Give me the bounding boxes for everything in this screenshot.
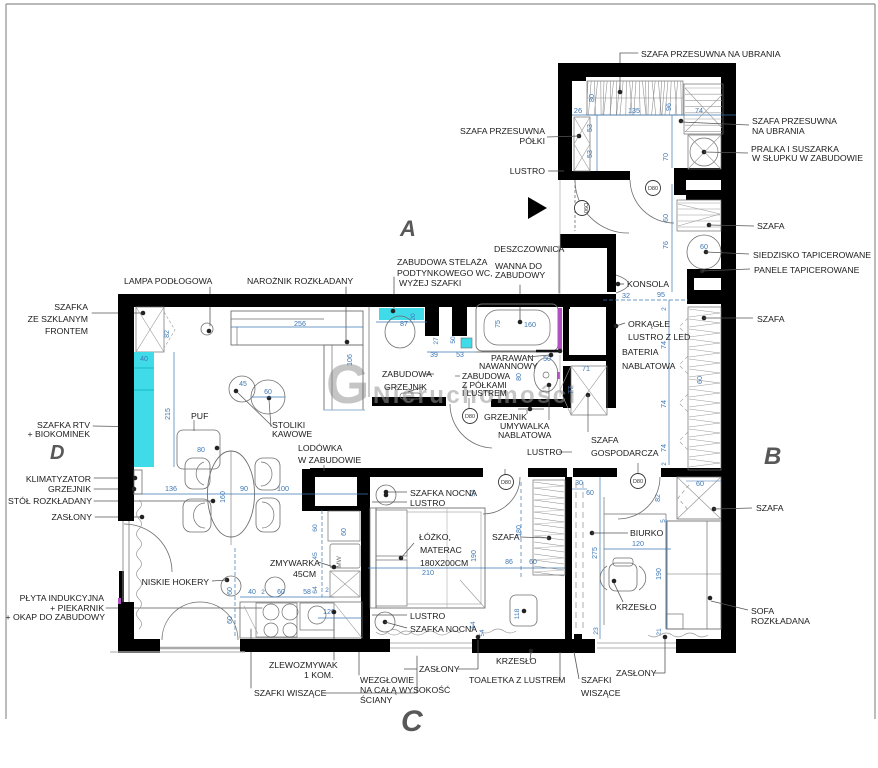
svg-text:SZAFKA: SZAFKA [54, 302, 88, 312]
svg-text:KAWOWE: KAWOWE [272, 429, 312, 439]
svg-text:118: 118 [514, 608, 521, 619]
svg-text:D90: D90 [582, 203, 588, 213]
svg-text:LUSTRO: LUSTRO [410, 498, 445, 508]
svg-text:82: 82 [164, 330, 171, 338]
svg-text:40: 40 [248, 589, 256, 596]
svg-text:2: 2 [261, 589, 265, 596]
svg-text:40: 40 [140, 356, 148, 363]
svg-text:PANELE TAPICEROWANE: PANELE TAPICEROWANE [754, 265, 860, 275]
svg-text:D80: D80 [648, 186, 658, 192]
svg-text:60: 60 [277, 589, 285, 596]
svg-text:ŁÓŻKO,: ŁÓŻKO, [419, 532, 451, 542]
svg-text:BIURKO: BIURKO [630, 528, 664, 538]
svg-text:SZAFA: SZAFA [757, 221, 785, 231]
svg-text:80: 80 [587, 94, 596, 102]
svg-text:50: 50 [450, 336, 457, 344]
svg-text:58: 58 [303, 589, 311, 596]
svg-text:20: 20 [410, 313, 417, 321]
svg-text:135: 135 [628, 106, 640, 115]
svg-text:NABLATOWA: NABLATOWA [622, 361, 676, 371]
svg-text:76: 76 [661, 241, 670, 249]
svg-text:LAMPA PODŁOGOWA: LAMPA PODŁOGOWA [124, 276, 213, 286]
svg-text:74: 74 [695, 106, 703, 115]
svg-text:D80: D80 [465, 414, 475, 420]
svg-text:74: 74 [659, 341, 668, 349]
svg-text:GRZEJNIK: GRZEJNIK [384, 382, 427, 392]
svg-text:A: A [399, 216, 416, 241]
svg-text:2: 2 [325, 587, 329, 594]
svg-text:GRZEJNIK: GRZEJNIK [48, 484, 91, 494]
svg-text:PODTYNKOWEGO WC,: PODTYNKOWEGO WC, [397, 268, 493, 278]
svg-text:60: 60 [227, 587, 234, 595]
svg-text:30: 30 [575, 480, 583, 487]
svg-text:27: 27 [433, 337, 440, 345]
svg-text:FRONTEM: FRONTEM [45, 326, 88, 336]
svg-text:96: 96 [664, 103, 673, 111]
svg-text:26: 26 [574, 106, 582, 115]
svg-text:ZLEWOZMYWAK: ZLEWOZMYWAK [269, 660, 338, 670]
svg-text:190: 190 [656, 568, 663, 580]
svg-text:SZAFA: SZAFA [756, 503, 784, 513]
svg-text:2: 2 [661, 307, 668, 311]
svg-text:NA CAŁĄ WYSOKOŚĆ: NA CAŁĄ WYSOKOŚĆ [360, 684, 450, 695]
svg-text:WISZĄCE: WISZĄCE [581, 688, 621, 698]
svg-text:PŁYTA INDUKCYJNA: PŁYTA INDUKCYJNA [20, 593, 105, 603]
svg-text:64: 64 [312, 586, 319, 594]
svg-text:LUSTRO Z LED: LUSTRO Z LED [628, 332, 690, 342]
svg-text:86: 86 [505, 559, 513, 566]
svg-text:53: 53 [585, 124, 594, 132]
svg-text:SZAFA PRZESUWNA: SZAFA PRZESUWNA [460, 126, 545, 136]
svg-text:32: 32 [622, 291, 630, 300]
svg-text:ŚCIANY: ŚCIANY [360, 694, 393, 705]
svg-text:D: D [50, 442, 64, 464]
svg-text:C: C [401, 705, 424, 738]
svg-text:WYŻEJ SZAFKI: WYŻEJ SZAFKI [399, 278, 461, 288]
svg-text:SZAFA: SZAFA [492, 532, 520, 542]
svg-text:PUF: PUF [191, 411, 208, 421]
svg-text:82: 82 [655, 494, 662, 502]
svg-text:WEZGŁOWIE: WEZGŁOWIE [360, 675, 414, 685]
svg-text:80: 80 [197, 447, 205, 454]
svg-text:ROZKŁADANA: ROZKŁADANA [751, 616, 810, 626]
svg-text:B: B [764, 443, 781, 470]
svg-text:NAROŻNIK ROZKŁADANY: NAROŻNIK ROZKŁADANY [247, 276, 353, 286]
svg-text:LUSTRO: LUSTRO [527, 447, 562, 457]
svg-text:SOFA: SOFA [751, 606, 774, 616]
svg-text:60: 60 [700, 242, 708, 251]
svg-text:PÓŁKI: PÓŁKI [519, 136, 545, 146]
svg-text:60: 60 [695, 376, 704, 384]
svg-text:SZAFKA NOCNA: SZAFKA NOCNA [410, 624, 477, 634]
svg-text:45: 45 [239, 381, 247, 388]
svg-text:W SŁUPKU W ZABUDOWIE: W SŁUPKU W ZABUDOWIE [752, 153, 863, 163]
svg-text:210: 210 [422, 568, 434, 577]
svg-text:1 KOM.: 1 KOM. [304, 670, 333, 680]
svg-text:74: 74 [659, 400, 668, 408]
svg-text:LUSTRO: LUSTRO [410, 611, 445, 621]
svg-text:MW: MW [336, 555, 343, 567]
svg-text:215: 215 [165, 408, 172, 420]
svg-text:53: 53 [456, 352, 464, 359]
svg-text:NABLATOWA: NABLATOWA [498, 430, 552, 440]
svg-text:80: 80 [516, 373, 523, 381]
svg-text:D80: D80 [633, 479, 643, 485]
svg-text:SZAFKA NOCNA: SZAFKA NOCNA [410, 488, 477, 498]
svg-text:39: 39 [430, 352, 438, 359]
svg-text:23: 23 [593, 627, 600, 635]
svg-text:SIEDZISKO TAPICEROWANE: SIEDZISKO TAPICEROWANE [753, 250, 871, 260]
svg-text:ZE SZKLANYM: ZE SZKLANYM [28, 314, 88, 324]
svg-text:70: 70 [661, 153, 670, 161]
svg-text:60: 60 [312, 524, 319, 532]
svg-text:190: 190 [471, 550, 478, 562]
svg-text:KRZESŁO: KRZESŁO [616, 602, 657, 612]
svg-text:75: 75 [495, 320, 502, 328]
svg-text:I LUSTREM: I LUSTREM [462, 388, 507, 398]
svg-text:SZAFA: SZAFA [757, 314, 785, 324]
svg-text:ZMYWARKA: ZMYWARKA [270, 558, 320, 568]
svg-text:100: 100 [277, 484, 289, 493]
svg-text:W ZABUDOWIE: W ZABUDOWIE [298, 455, 361, 465]
svg-text:NA UBRANIA: NA UBRANIA [752, 126, 805, 136]
svg-text:ZABUDOWY: ZABUDOWY [495, 270, 545, 280]
svg-text:60: 60 [264, 389, 272, 396]
svg-text:77: 77 [566, 386, 575, 394]
svg-text:60: 60 [227, 616, 234, 624]
svg-text:160: 160 [524, 320, 536, 329]
svg-text:MATERAC: MATERAC [420, 545, 462, 555]
svg-text:LODÓWKA: LODÓWKA [298, 443, 343, 453]
svg-text:95: 95 [657, 290, 665, 299]
svg-text:ZABUDOWA STELAŻA: ZABUDOWA STELAŻA [397, 257, 488, 267]
svg-text:DESZCZOWNICA: DESZCZOWNICA [494, 244, 565, 254]
svg-text:45CM: 45CM [293, 569, 316, 579]
svg-text:KLIMATYZATOR: KLIMATYZATOR [26, 474, 91, 484]
svg-text:SZAFKI WISZĄCE: SZAFKI WISZĄCE [254, 688, 327, 698]
svg-text:136: 136 [165, 484, 177, 493]
svg-text:KONSOLA: KONSOLA [627, 279, 669, 289]
svg-text:ZASŁONY: ZASŁONY [419, 664, 460, 674]
svg-text:120: 120 [632, 539, 644, 548]
svg-text:60: 60 [661, 214, 670, 222]
svg-text:SZAFA PRZESUWNA: SZAFA PRZESUWNA [752, 116, 837, 126]
svg-text:160: 160 [220, 491, 227, 503]
svg-text:71: 71 [582, 364, 590, 373]
svg-text:STÓŁ ROZKŁADANY: STÓŁ ROZKŁADANY [8, 496, 92, 506]
svg-text:LUSTRO: LUSTRO [510, 166, 545, 176]
svg-text:BATERIA: BATERIA [622, 347, 659, 357]
svg-text:ZASŁONY: ZASŁONY [616, 668, 657, 678]
svg-text:53: 53 [585, 150, 594, 158]
svg-text:SZAFKI: SZAFKI [581, 675, 611, 685]
svg-text:60: 60 [341, 528, 348, 536]
svg-text:+ BIOKOMINEK: + BIOKOMINEK [27, 429, 90, 439]
svg-text:TOALETKA Z LUSTREM: TOALETKA Z LUSTREM [469, 675, 565, 685]
svg-text:D80: D80 [501, 480, 511, 486]
svg-text:90: 90 [240, 484, 248, 493]
svg-text:SZAFA PRZESUWNA NA UBRANIA: SZAFA PRZESUWNA NA UBRANIA [641, 49, 781, 59]
svg-text:256: 256 [294, 319, 306, 328]
svg-text:60: 60 [696, 479, 704, 488]
svg-text:275: 275 [592, 547, 599, 559]
svg-text:+ OKAP DO ZABUDOWY: + OKAP DO ZABUDOWY [5, 612, 105, 622]
svg-text:50: 50 [543, 356, 551, 363]
svg-text:21: 21 [656, 628, 663, 636]
svg-text:74: 74 [659, 444, 668, 452]
svg-text:ORKĄGŁE: ORKĄGŁE [628, 319, 670, 329]
svg-text:180X200CM: 180X200CM [420, 558, 468, 568]
svg-text:ZASŁONY: ZASŁONY [51, 512, 92, 522]
svg-text:106: 106 [347, 354, 354, 366]
svg-text:SZAFA: SZAFA [591, 435, 619, 445]
svg-text:87: 87 [400, 319, 408, 328]
svg-text:54: 54 [479, 629, 486, 636]
svg-text:NAWANNOWY: NAWANNOWY [479, 361, 538, 371]
svg-text:GOSPODARCZA: GOSPODARCZA [591, 448, 659, 458]
svg-text:NISKIE HOKERY: NISKIE HOKERY [142, 577, 210, 587]
svg-text:60: 60 [586, 490, 594, 497]
svg-text:2: 2 [661, 462, 668, 466]
